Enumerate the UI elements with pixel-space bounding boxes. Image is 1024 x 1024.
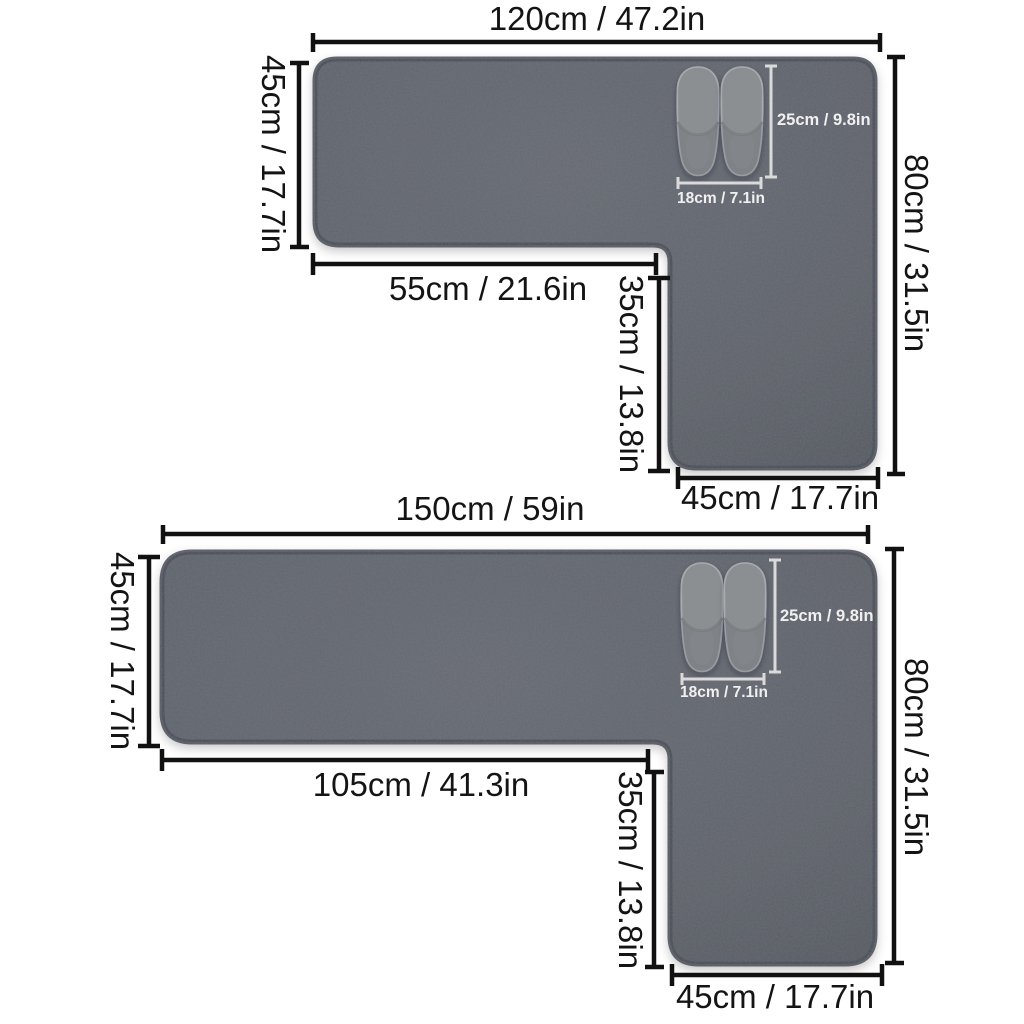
svg-text:55cm / 21.6in: 55cm / 21.6in [389,270,587,307]
svg-text:80cm / 31.5in: 80cm / 31.5in [898,658,935,856]
svg-text:18cm / 7.1in: 18cm / 7.1in [677,190,765,207]
svg-text:18cm / 7.1in: 18cm / 7.1in [680,684,768,701]
svg-text:25cm / 9.8in: 25cm / 9.8in [780,607,874,625]
svg-text:35cm / 13.8in: 35cm / 13.8in [612,771,649,969]
svg-text:25cm / 9.8in: 25cm / 9.8in [777,111,871,129]
svg-text:150cm / 59in: 150cm / 59in [396,490,585,527]
svg-text:35cm / 13.8in: 35cm / 13.8in [613,275,650,473]
svg-text:45cm / 17.7in: 45cm / 17.7in [681,479,879,516]
svg-text:45cm / 17.7in: 45cm / 17.7in [676,978,874,1015]
svg-text:105cm / 41.3in: 105cm / 41.3in [313,766,529,803]
svg-text:45cm / 17.7in: 45cm / 17.7in [255,55,292,253]
svg-text:120cm / 47.2in: 120cm / 47.2in [489,0,705,37]
svg-text:80cm / 31.5in: 80cm / 31.5in [898,154,935,352]
svg-text:45cm / 17.7in: 45cm / 17.7in [104,552,141,750]
